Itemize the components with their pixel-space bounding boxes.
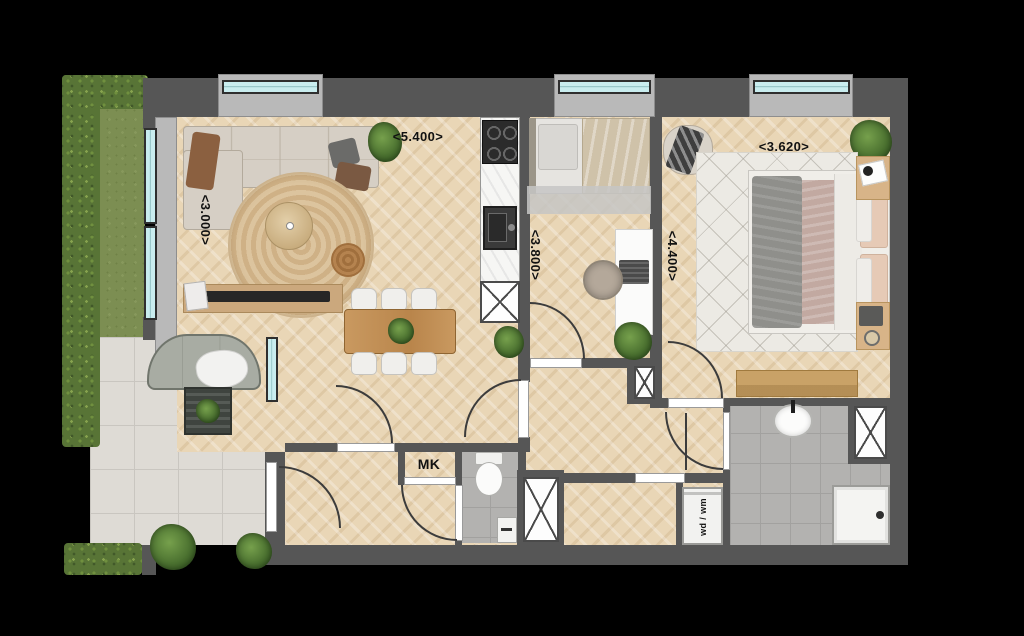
table-decor — [286, 222, 294, 230]
sink-basin — [488, 213, 507, 242]
desk-chair — [583, 260, 623, 300]
window-terrace — [266, 337, 278, 402]
nightstand-decor — [859, 306, 883, 326]
wall-mk-toilet — [455, 452, 462, 485]
wall-right — [890, 78, 908, 565]
window-living-left-2 — [144, 226, 157, 320]
cooktop — [482, 120, 518, 164]
entrance-door-leaf — [266, 462, 277, 532]
hand-mirror — [864, 330, 880, 346]
wall-bathroom-left-b — [723, 470, 730, 545]
dining-chair — [411, 352, 437, 375]
window-living-left-1 — [144, 128, 157, 224]
hedge-left — [62, 75, 100, 447]
dim-label-living-width: <5.400> — [383, 129, 453, 145]
potted-plant — [196, 399, 220, 423]
wall-living-bottom-a — [285, 443, 337, 452]
basin-tap — [501, 528, 512, 531]
dining-chair — [351, 352, 377, 375]
hedge-bottom — [64, 543, 142, 575]
window-living-top — [222, 80, 319, 94]
magazines — [183, 281, 208, 311]
dining-chair — [381, 288, 407, 311]
washer-dryer-label: wd / wm — [695, 487, 711, 547]
hedge-top — [62, 75, 148, 109]
door-threshold — [530, 358, 582, 368]
wall-bottom — [265, 545, 908, 565]
wall-toilet-stub — [455, 541, 462, 549]
potted-plant — [614, 322, 652, 360]
toilet — [475, 462, 503, 496]
duvet-gray — [752, 176, 802, 328]
wall-living-bottom-b — [395, 443, 520, 452]
door-threshold — [337, 443, 395, 452]
window-bedroom2-top — [558, 80, 651, 94]
mk-label: MK — [404, 456, 454, 472]
table-centerpiece-plant — [388, 318, 414, 344]
potted-plant — [494, 326, 524, 358]
dim-label-bedroom1-depth: <4.400> — [664, 221, 680, 291]
wall-hall-a — [562, 473, 635, 483]
potted-plant — [150, 524, 196, 570]
ventilation-shaft — [523, 477, 559, 542]
dining-chair — [411, 288, 437, 311]
nightstand-decor — [863, 166, 873, 176]
kitchen-tall-cabinet — [480, 281, 520, 323]
faucet — [508, 224, 515, 231]
dim-label-living-depth: <3.000> — [197, 185, 213, 255]
shower-drain — [876, 511, 884, 519]
basin-faucet — [791, 400, 795, 413]
wardrobe-bench — [736, 370, 858, 397]
tv — [200, 291, 330, 302]
pouf — [331, 243, 365, 277]
dining-chair — [351, 288, 377, 311]
wall-bathroom-left-a — [723, 403, 730, 412]
bathroom-door-threshold — [723, 412, 730, 470]
door-threshold — [635, 473, 685, 483]
window-bedroom1-top — [753, 80, 850, 94]
bedside-rug — [527, 186, 651, 214]
window-recess-left — [155, 117, 177, 360]
potted-plant — [236, 533, 272, 569]
bed-headboard — [529, 118, 536, 194]
wall-hall-b — [685, 473, 723, 483]
door-threshold — [668, 398, 724, 408]
mk-door-threshold — [404, 477, 456, 485]
bed-blanket — [582, 118, 650, 194]
wall-bedroom2-bottom-a — [518, 358, 530, 368]
laptop — [619, 260, 649, 284]
dim-label-bedroom2-depth: <3.800> — [527, 220, 543, 290]
dining-chair — [381, 352, 407, 375]
ventilation-shaft — [854, 406, 887, 459]
bed-pillow — [538, 124, 578, 170]
duvet-mauve — [802, 180, 834, 324]
floorplan-canvas: <5.400> <3.000> <3.800> <4.400> <3.620> … — [0, 0, 1024, 636]
bathroom-door-leaf — [685, 413, 687, 470]
dim-label-bedroom1-width: <3.620> — [749, 139, 819, 155]
ventilation-shaft — [634, 366, 655, 399]
